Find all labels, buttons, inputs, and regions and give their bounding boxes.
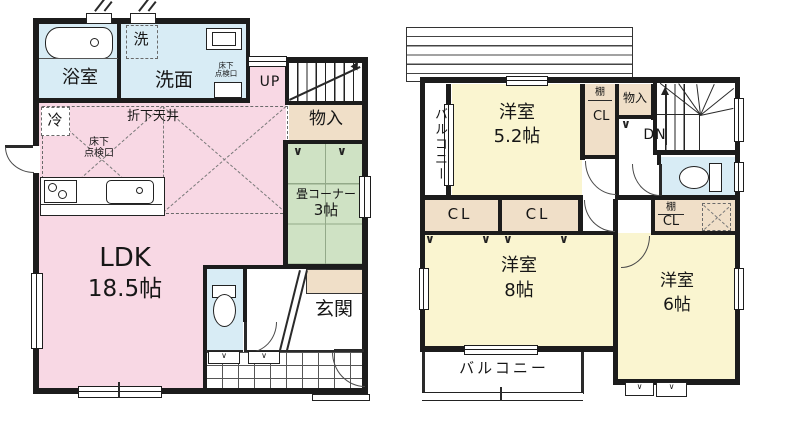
burner-icon <box>48 183 57 192</box>
room-label-bath: 浴室 <box>48 68 112 88</box>
porch-step <box>312 394 370 401</box>
window <box>464 345 538 355</box>
roof-vent-icon <box>86 13 112 24</box>
fold-door-mark: ∨ <box>337 145 347 157</box>
balcony-rail-side <box>422 352 425 394</box>
faucet-icon <box>136 187 143 194</box>
burner-icon <box>58 190 67 199</box>
fold-door-mark: ∨ <box>481 233 491 245</box>
door-swing-arc <box>248 322 277 353</box>
room-label-balcony-side: バルコニー <box>424 92 446 196</box>
shoe-cabinet <box>306 269 365 294</box>
room-label-storage-2f: 物入 <box>618 92 652 105</box>
fold-door-mark: ∨ <box>559 233 569 245</box>
window <box>78 386 162 398</box>
roof-vent-icon <box>130 13 156 24</box>
floor-plan-canvas: ∨ ∨ ∨ ∨ 浴室 洗 洗面 床下 点検口 UP 物入 冷 折下天井 床下 点… <box>0 0 800 437</box>
fold-mark-icon: ∨ <box>637 382 643 391</box>
window <box>734 268 744 310</box>
door-swing-arc <box>585 161 616 195</box>
room-size-tatami: 3帖 <box>289 202 363 219</box>
room-label-6: 洋室 <box>646 272 708 291</box>
kitchen-sink-icon <box>106 180 154 204</box>
vent-window-icon: ∨ <box>248 351 280 364</box>
stair-fan-line <box>700 84 715 116</box>
vent-window-icon: ∨ <box>625 382 654 396</box>
door-swing-arc <box>584 200 615 232</box>
stair-divider <box>699 115 700 150</box>
railing-tick <box>500 387 502 401</box>
label-closet-a: CL <box>432 206 488 223</box>
wall <box>651 231 740 235</box>
room-label-8: 洋室 <box>486 256 552 276</box>
window <box>734 162 744 192</box>
wall <box>653 150 740 155</box>
wall <box>651 199 655 235</box>
fold-door-mark: ∨ <box>425 233 435 245</box>
label-lowered-ceiling: 折下天井 <box>112 110 194 125</box>
floor-hatch-box <box>214 82 242 98</box>
fold-door-mark: ∨ <box>503 233 513 245</box>
wall <box>420 231 618 235</box>
door-gap <box>33 146 40 173</box>
room-size-5-2: 5.2帖 <box>477 127 557 147</box>
vent-window-icon: ∨ <box>208 351 240 364</box>
room-label-ldk: LDK <box>75 244 175 273</box>
room-label-entrance: 玄関 <box>303 299 365 320</box>
roof-vent-line <box>148 1 157 11</box>
door-leaf <box>244 322 247 352</box>
shelf-line <box>588 100 612 101</box>
wall <box>362 57 368 394</box>
room-label-balcony-bottom: バルコニー <box>448 360 560 377</box>
window <box>248 56 287 67</box>
hatch-text-line2: 点検口 <box>215 69 238 78</box>
label-closet-top: CL <box>593 108 608 127</box>
label-shelf-right: 棚 <box>662 202 680 213</box>
label-closet-b: CL <box>510 206 566 223</box>
room-size-8: 8帖 <box>492 281 546 301</box>
wall <box>653 80 657 155</box>
fold-door-mark: ∨ <box>293 145 303 157</box>
wall <box>580 84 585 160</box>
bathtub-icon <box>45 27 113 59</box>
balcony-railing <box>422 392 583 401</box>
label-floor-hatch-small: 床下 点検口 <box>206 62 246 79</box>
wall <box>243 269 247 322</box>
door-swing-arc <box>5 147 34 173</box>
hatch-text-line1: 床下 <box>89 137 109 148</box>
label-fridge: 冷 <box>45 112 65 129</box>
label-washer: 洗 <box>128 31 154 48</box>
hatch-text-line2: 点検口 <box>84 148 114 159</box>
wall <box>578 199 583 233</box>
label-shelf-top: 棚 <box>588 87 612 98</box>
fold-mark-icon: ∨ <box>261 351 267 360</box>
toilet-tank-icon <box>709 163 722 192</box>
wall <box>203 265 207 389</box>
wall <box>583 155 617 159</box>
label-closet-right: CL <box>656 215 686 230</box>
room-label-5-2: 洋室 <box>482 103 552 123</box>
window <box>31 273 43 349</box>
bathtub-drain-icon <box>90 38 99 47</box>
room-label-washroom: 洗面 <box>136 70 212 91</box>
stair-mid-line <box>657 114 700 115</box>
door-swing-arc <box>632 164 660 196</box>
window-tick <box>118 382 120 398</box>
bath-partition-line <box>39 58 118 59</box>
toilet-bowl-icon <box>679 166 709 189</box>
label-floor-hatch-mid: 床下 点検口 <box>74 137 124 159</box>
wall <box>420 77 740 83</box>
wall <box>117 23 121 103</box>
lower-roof-icon <box>406 27 633 82</box>
window <box>419 268 429 310</box>
room-size-ldk: 18.5帖 <box>65 277 185 303</box>
roof-vent-line <box>104 1 113 11</box>
vent-window-icon: ∨ <box>656 382 687 397</box>
toilet-bowl-icon <box>213 294 236 327</box>
fold-mark-icon: ∨ <box>221 351 227 360</box>
fold-door-mark: ∨ <box>621 118 631 130</box>
vanity-basin-icon <box>212 32 236 46</box>
window <box>506 76 548 86</box>
counter-edge-line <box>41 204 162 205</box>
label-stairs-up: UP <box>253 75 287 91</box>
room-size-6: 6帖 <box>651 296 703 315</box>
window <box>734 98 744 142</box>
door-leaf <box>659 164 662 196</box>
wall <box>287 101 365 105</box>
wall <box>615 195 740 200</box>
wall <box>283 140 288 268</box>
stairs-arrowhead <box>661 87 669 95</box>
wall <box>498 199 502 233</box>
room-label-storage-1f: 物入 <box>292 110 360 129</box>
room-label-tatami: 畳コーナー <box>289 188 363 201</box>
label-stairs-down: DN <box>638 128 672 144</box>
fold-mark-icon: ∨ <box>669 382 675 391</box>
wall <box>38 98 250 103</box>
balcony-rail-side <box>581 352 584 394</box>
wall <box>283 264 368 269</box>
